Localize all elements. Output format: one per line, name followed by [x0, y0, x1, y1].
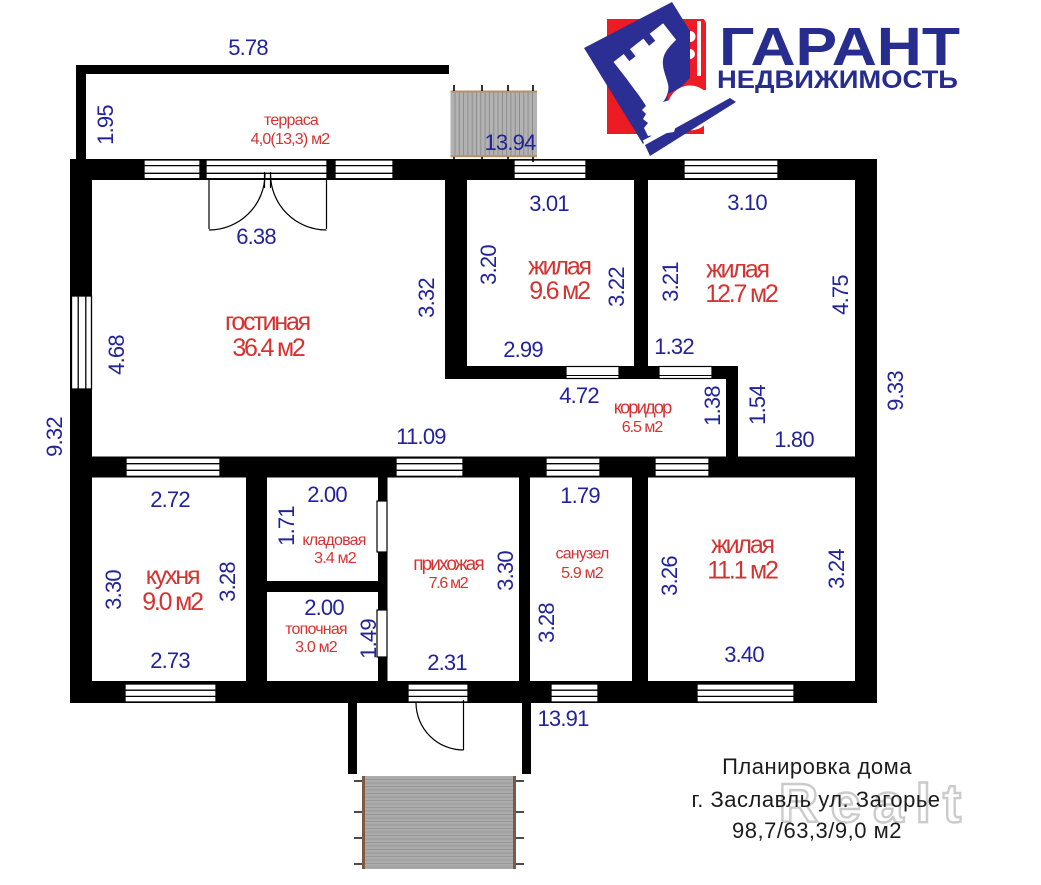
svg-text:1.54: 1.54: [745, 385, 770, 425]
svg-text:4.68: 4.68: [104, 335, 129, 375]
svg-text:2.99: 2.99: [503, 337, 543, 362]
svg-text:прихожая: прихожая: [413, 554, 483, 575]
svg-text:2.73: 2.73: [150, 648, 190, 673]
svg-text:Планировка дома: Планировка дома: [722, 754, 912, 779]
svg-text:13.94: 13.94: [484, 130, 536, 155]
svg-text:1.95: 1.95: [93, 105, 118, 145]
svg-text:6.38: 6.38: [236, 224, 276, 249]
svg-text:13.91: 13.91: [537, 706, 589, 731]
svg-text:терраса: терраса: [264, 112, 319, 129]
svg-text:1.32: 1.32: [654, 334, 694, 359]
svg-text:11.1 м2: 11.1 м2: [707, 557, 778, 585]
svg-text:НЕДВИЖИМОСТЬ: НЕДВИЖИМОСТЬ: [717, 66, 958, 94]
svg-text:1.79: 1.79: [560, 483, 600, 508]
svg-text:жилая: жилая: [711, 531, 773, 559]
svg-text:3.24: 3.24: [824, 549, 849, 589]
svg-text:2.00: 2.00: [304, 595, 344, 620]
svg-text:3.20: 3.20: [476, 245, 501, 285]
svg-text:3.22: 3.22: [604, 267, 629, 307]
svg-text:г. Заславль ул. Загорье: г. Заславль ул. Загорье: [691, 787, 940, 812]
svg-text:3.21: 3.21: [658, 262, 683, 302]
svg-text:3.26: 3.26: [657, 556, 682, 596]
svg-text:4.75: 4.75: [828, 275, 853, 315]
svg-text:3.40: 3.40: [724, 642, 764, 667]
svg-text:коридор: коридор: [614, 397, 672, 418]
svg-text:3.28: 3.28: [534, 603, 559, 643]
svg-text:12.7 м2: 12.7 м2: [705, 280, 778, 308]
svg-text:3.32: 3.32: [414, 278, 439, 318]
svg-text:топочная: топочная: [285, 621, 347, 638]
svg-text:5.78: 5.78: [228, 35, 268, 60]
svg-text:1.80: 1.80: [774, 427, 814, 452]
svg-text:9.0 м2: 9.0 м2: [142, 588, 203, 616]
svg-text:2.72: 2.72: [150, 487, 190, 512]
svg-text:36.4 м2: 36.4 м2: [232, 334, 305, 362]
svg-text:4,0(13,3) м2: 4,0(13,3) м2: [251, 131, 331, 148]
svg-text:3.01: 3.01: [529, 191, 569, 216]
svg-text:11.09: 11.09: [396, 424, 446, 449]
svg-text:5.9 м2: 5.9 м2: [561, 565, 604, 582]
svg-text:кухня: кухня: [146, 562, 199, 590]
svg-text:гостиная: гостиная: [225, 308, 310, 336]
svg-text:1.71: 1.71: [274, 506, 299, 546]
svg-text:4.72: 4.72: [559, 383, 599, 408]
svg-text:2.31: 2.31: [427, 650, 467, 675]
svg-text:санузел: санузел: [556, 546, 609, 563]
svg-text:1.38: 1.38: [700, 386, 725, 426]
svg-text:1.49: 1.49: [356, 619, 381, 659]
svg-text:9.32: 9.32: [42, 417, 67, 457]
svg-text:3.30: 3.30: [493, 551, 518, 591]
svg-text:3.28: 3.28: [215, 562, 240, 602]
svg-text:2.00: 2.00: [307, 482, 347, 507]
svg-text:9.33: 9.33: [883, 371, 908, 411]
svg-text:3.30: 3.30: [101, 570, 126, 610]
svg-text:9.6 м2: 9.6 м2: [529, 277, 590, 305]
svg-text:7.6 м2: 7.6 м2: [429, 575, 469, 592]
svg-text:3.0 м2: 3.0 м2: [295, 639, 338, 656]
svg-text:3.4 м2: 3.4 м2: [314, 550, 357, 567]
svg-text:98,7/63,3/9,0 м2: 98,7/63,3/9,0 м2: [732, 818, 902, 843]
svg-text:3.10: 3.10: [727, 190, 767, 215]
svg-text:кладовая: кладовая: [302, 532, 365, 549]
svg-text:6.5 м2: 6.5 м2: [622, 419, 664, 436]
